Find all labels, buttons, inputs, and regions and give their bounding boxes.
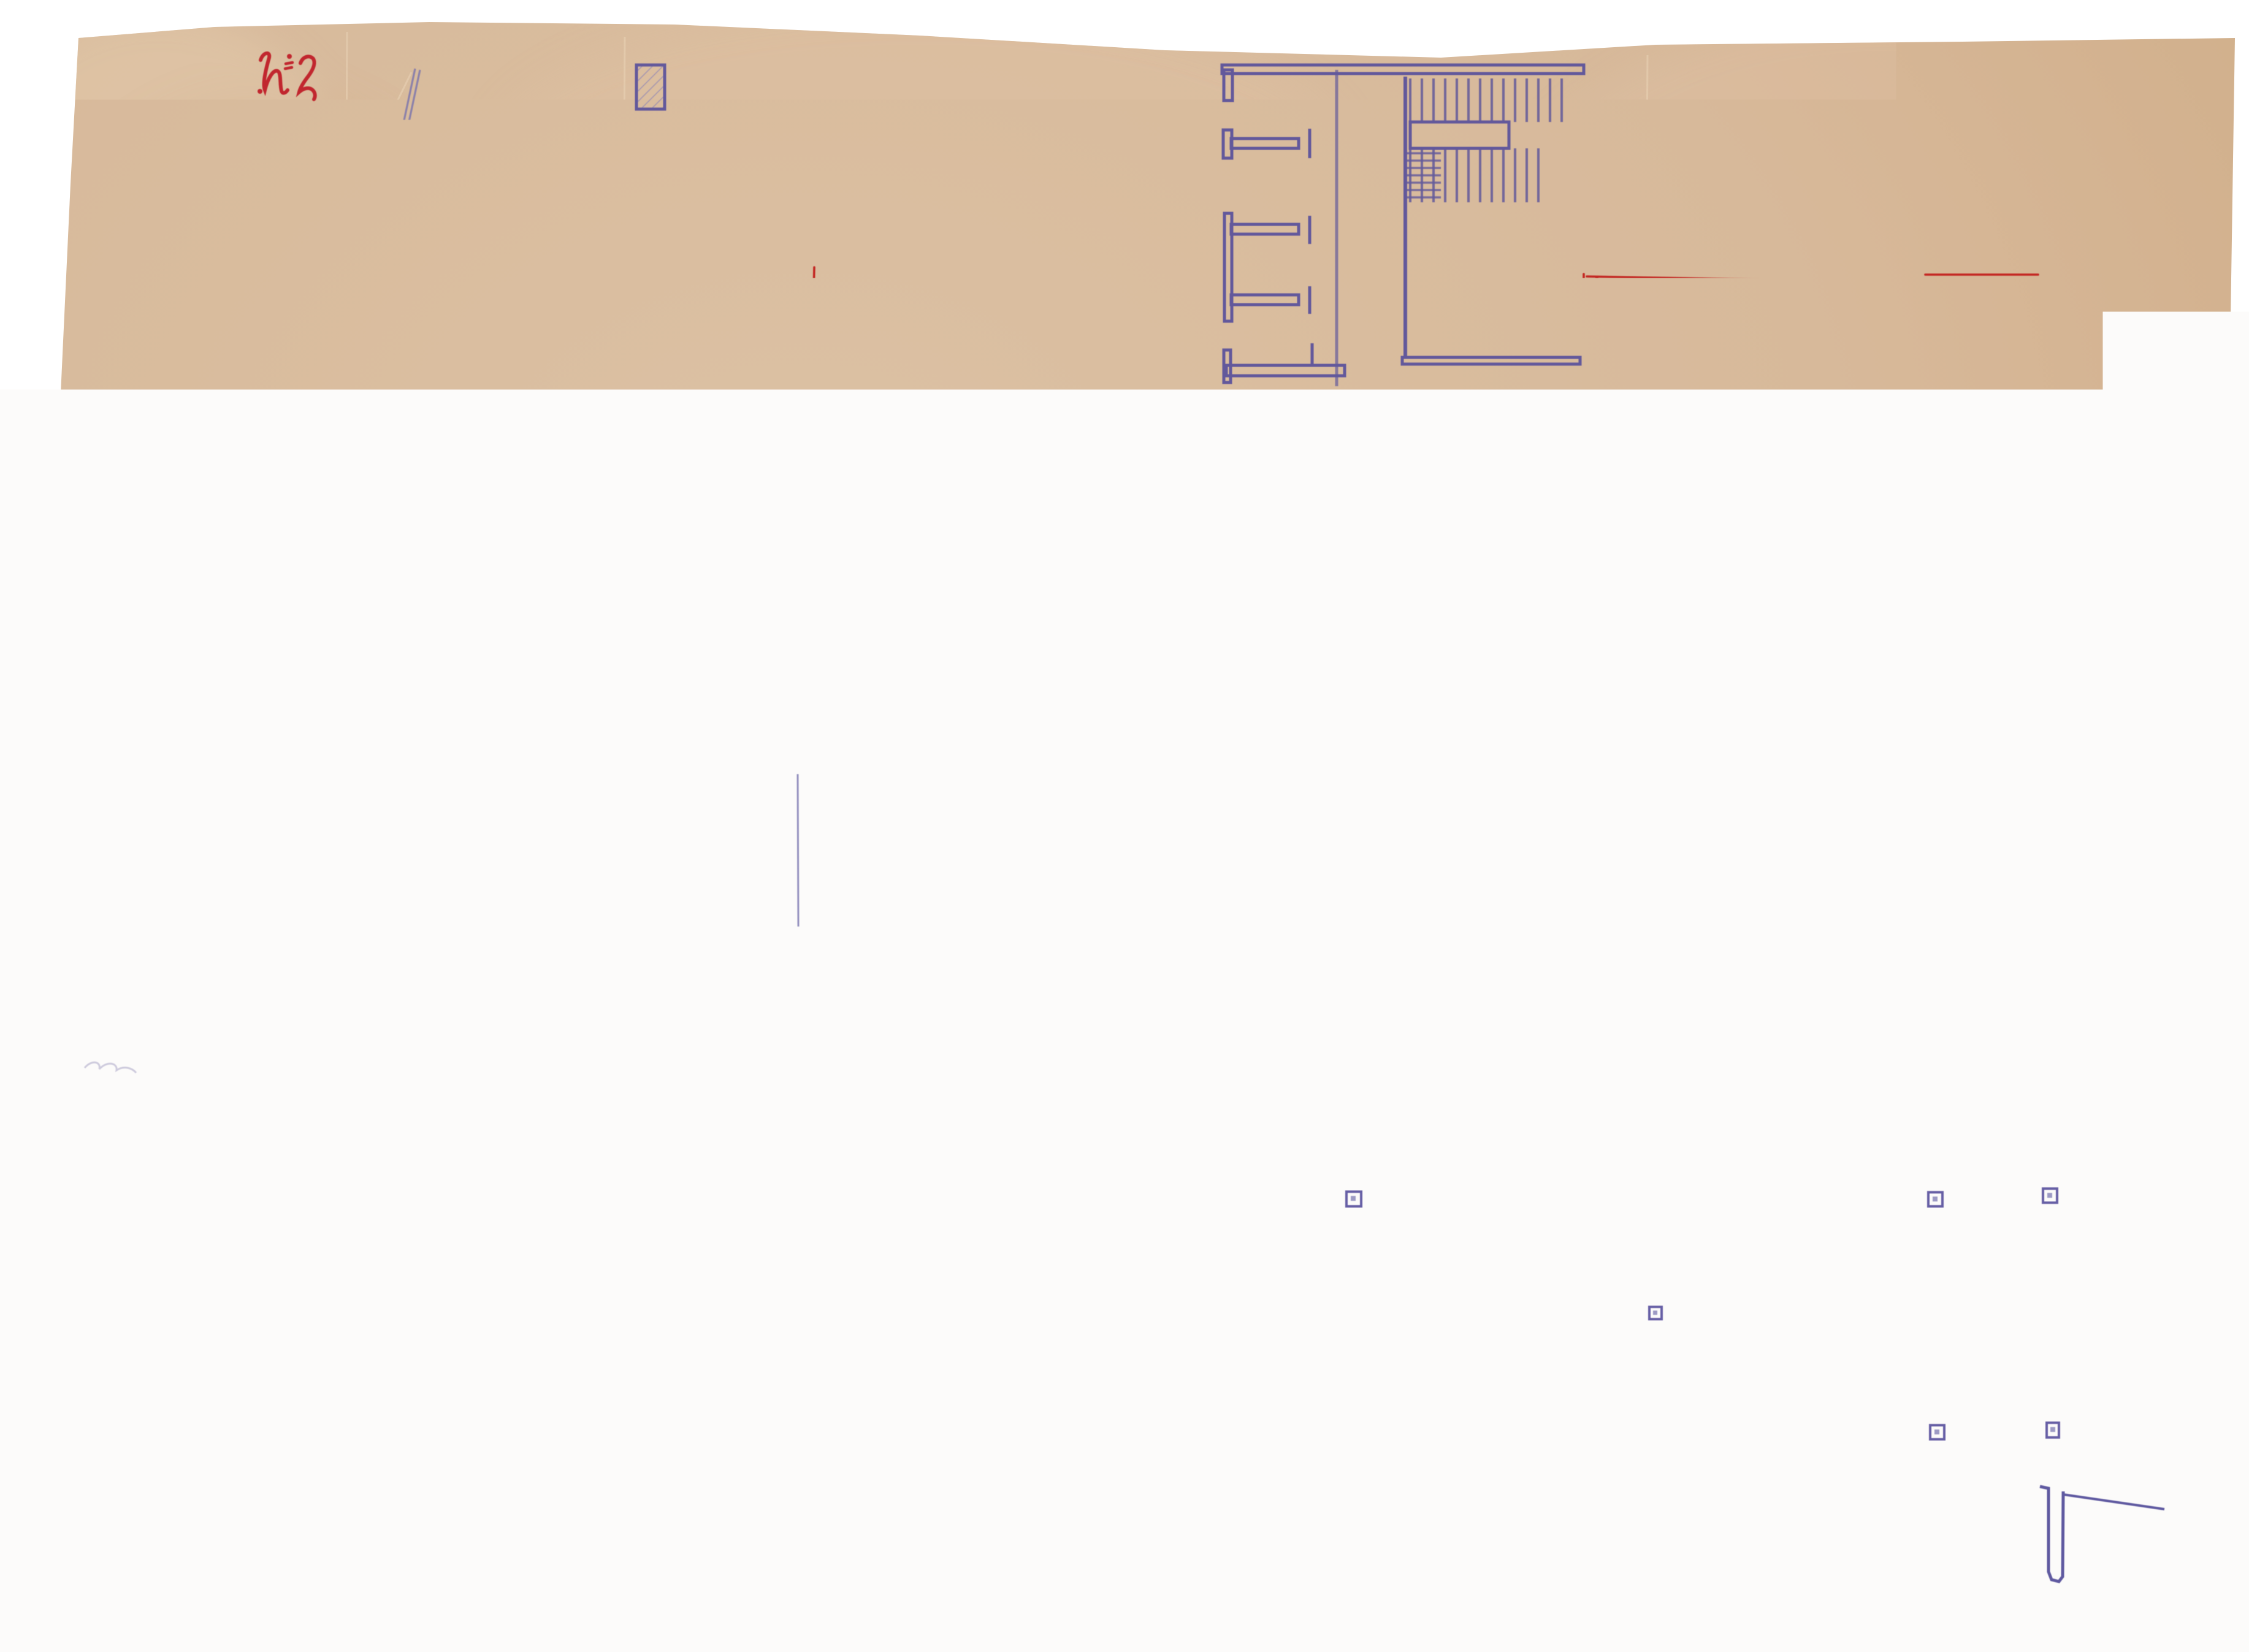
svg-text:Documentation & Research: Documentation & Research <box>678 1222 1701 1292</box>
